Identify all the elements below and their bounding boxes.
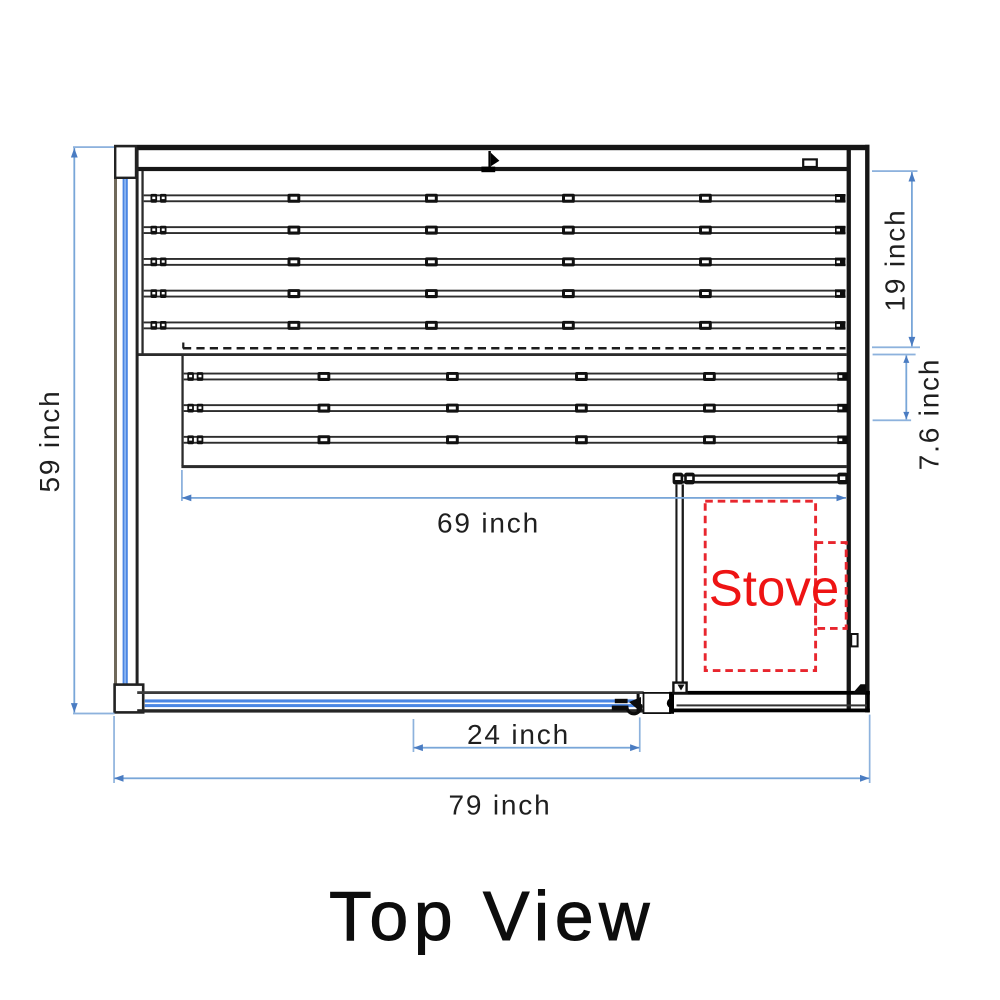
svg-text:59 inch: 59 inch bbox=[34, 390, 65, 493]
svg-text:7.6 inch: 7.6 inch bbox=[914, 358, 945, 470]
svg-text:79 inch: 79 inch bbox=[449, 790, 552, 821]
svg-text:24 inch: 24 inch bbox=[467, 719, 570, 750]
svg-text:Top View: Top View bbox=[329, 877, 655, 955]
svg-text:19 inch: 19 inch bbox=[880, 209, 911, 312]
svg-text:69 inch: 69 inch bbox=[437, 508, 540, 539]
svg-text:Stove: Stove bbox=[709, 560, 839, 617]
